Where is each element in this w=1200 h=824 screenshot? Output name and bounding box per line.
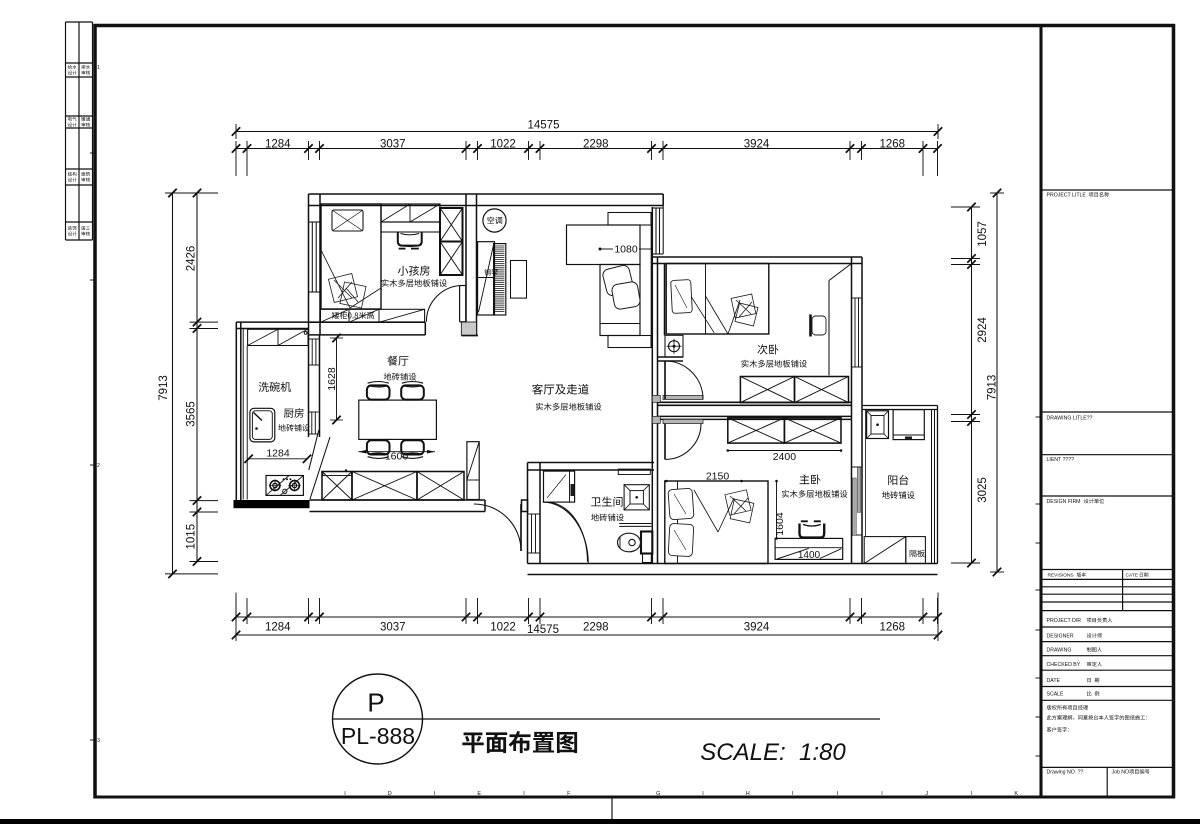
svg-text:Drawing NO ??: Drawing NO ?? <box>1047 770 1084 776</box>
svg-text:1268: 1268 <box>879 138 905 150</box>
svg-text:DRAWING: DRAWING <box>1047 648 1072 654</box>
svg-text:DESIGN FIRM: DESIGN FIRM <box>1047 499 1081 505</box>
svg-text:LIENT ????: LIENT ???? <box>1047 457 1075 463</box>
svg-text:PROJECT LITLE: PROJECT LITLE <box>1047 193 1087 199</box>
svg-text:1400: 1400 <box>798 550 821 561</box>
svg-text:1284: 1284 <box>265 138 291 150</box>
svg-text:DRAWING LITLE??: DRAWING LITLE?? <box>1047 416 1093 422</box>
svg-text:1022: 1022 <box>490 622 516 634</box>
svg-text:3924: 3924 <box>744 138 770 150</box>
svg-text:1628: 1628 <box>326 367 338 391</box>
svg-text:1080: 1080 <box>614 244 638 256</box>
svg-text:P: P <box>367 688 384 718</box>
svg-text:SCALE: 1:80: SCALE: 1:80 <box>700 739 846 766</box>
svg-text:1057: 1057 <box>977 221 989 247</box>
svg-text:14575: 14575 <box>527 624 559 636</box>
svg-text:REVISIONS: REVISIONS <box>1048 573 1074 579</box>
svg-text:E: E <box>477 791 481 797</box>
svg-text:DATE: DATE <box>1047 678 1061 684</box>
svg-text:PROJECT DIR: PROJECT DIR <box>1047 618 1082 624</box>
svg-text:Job NO: Job NO <box>1112 770 1130 776</box>
svg-text:CATE: CATE <box>1126 573 1138 579</box>
svg-text:2: 2 <box>97 463 100 469</box>
svg-text:2400: 2400 <box>773 451 797 463</box>
svg-text:1: 1 <box>97 65 100 71</box>
svg-text:1600: 1600 <box>385 451 409 463</box>
svg-text:K: K <box>1014 791 1018 797</box>
svg-text:G: G <box>656 791 660 797</box>
svg-text:3037: 3037 <box>380 138 406 150</box>
svg-text:SCALE: SCALE <box>1047 692 1065 698</box>
svg-text:1015: 1015 <box>186 524 198 550</box>
svg-text:1022: 1022 <box>490 138 516 150</box>
svg-text:2298: 2298 <box>583 138 609 150</box>
svg-text:2298: 2298 <box>583 622 609 634</box>
svg-text:3565: 3565 <box>186 401 198 427</box>
svg-text:1604: 1604 <box>774 512 786 536</box>
svg-text:1284: 1284 <box>266 448 290 460</box>
svg-text:2426: 2426 <box>186 246 198 272</box>
svg-text:14575: 14575 <box>528 120 560 132</box>
svg-text:3: 3 <box>97 738 100 744</box>
svg-text:CHECKED BY: CHECKED BY <box>1047 662 1081 668</box>
svg-text:J: J <box>925 791 928 797</box>
svg-text:1284: 1284 <box>265 622 291 634</box>
svg-text:3025: 3025 <box>977 477 989 503</box>
svg-text:PL-888: PL-888 <box>341 723 415 749</box>
svg-text:7913: 7913 <box>158 375 170 401</box>
svg-text:DESIGNER: DESIGNER <box>1047 634 1074 640</box>
svg-text:3924: 3924 <box>744 622 770 634</box>
svg-text:7913: 7913 <box>987 375 999 401</box>
svg-text:3037: 3037 <box>380 622 406 634</box>
svg-text:D: D <box>388 791 392 797</box>
svg-text:1268: 1268 <box>879 622 905 634</box>
svg-text:H: H <box>746 791 750 797</box>
svg-text:2924: 2924 <box>977 317 989 343</box>
